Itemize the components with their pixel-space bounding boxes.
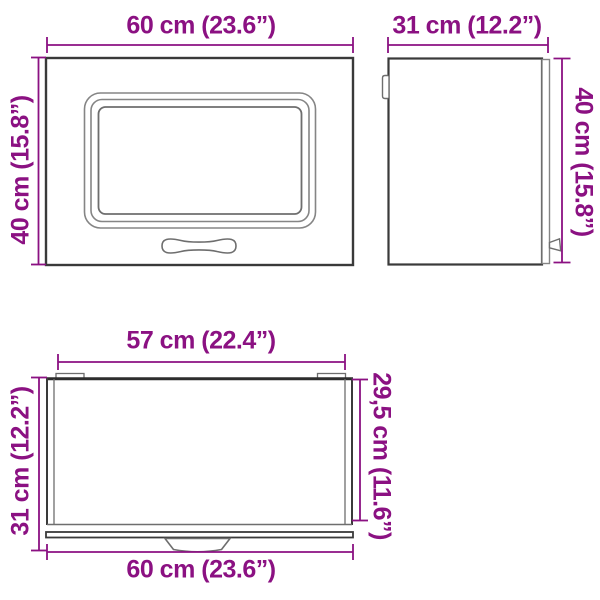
front-height-label: 40 cm (15.8”) bbox=[9, 95, 34, 244]
front-cabinet-body bbox=[46, 58, 353, 265]
top-body-depth-label: 29,5 cm (11.6”) bbox=[369, 372, 394, 540]
cabinet-line-drawings bbox=[0, 0, 600, 600]
top-inner-width-label: 57 cm (22.4”) bbox=[126, 329, 275, 354]
side-height-dimension-line bbox=[554, 59, 571, 263]
front-width-label: 60 cm (23.6”) bbox=[126, 14, 275, 39]
side-door-handle bbox=[550, 239, 561, 251]
top-door-strip bbox=[46, 532, 353, 538]
side-view-drawing bbox=[383, 59, 561, 265]
side-height-label: 40 cm (15.8”) bbox=[571, 87, 596, 236]
top-view-drawing bbox=[46, 374, 353, 552]
top-total-depth-label: 31 cm (12.2”) bbox=[9, 386, 34, 535]
side-cabinet-body bbox=[389, 59, 543, 265]
front-view-drawing bbox=[46, 58, 353, 265]
top-body-depth-dimension-line bbox=[352, 380, 368, 521]
side-door-edge bbox=[542, 60, 550, 264]
side-depth-label: 31 cm (12.2”) bbox=[392, 14, 541, 39]
side-wall-bracket bbox=[383, 76, 389, 99]
top-door-handle bbox=[165, 539, 230, 552]
dimension-diagram: 60 cm (23.6”) 40 cm (15.8”) 31 cm (12.2”… bbox=[0, 0, 600, 600]
top-inner-width-dimension-line bbox=[58, 354, 345, 370]
top-outer-width-label: 60 cm (23.6”) bbox=[126, 558, 275, 583]
